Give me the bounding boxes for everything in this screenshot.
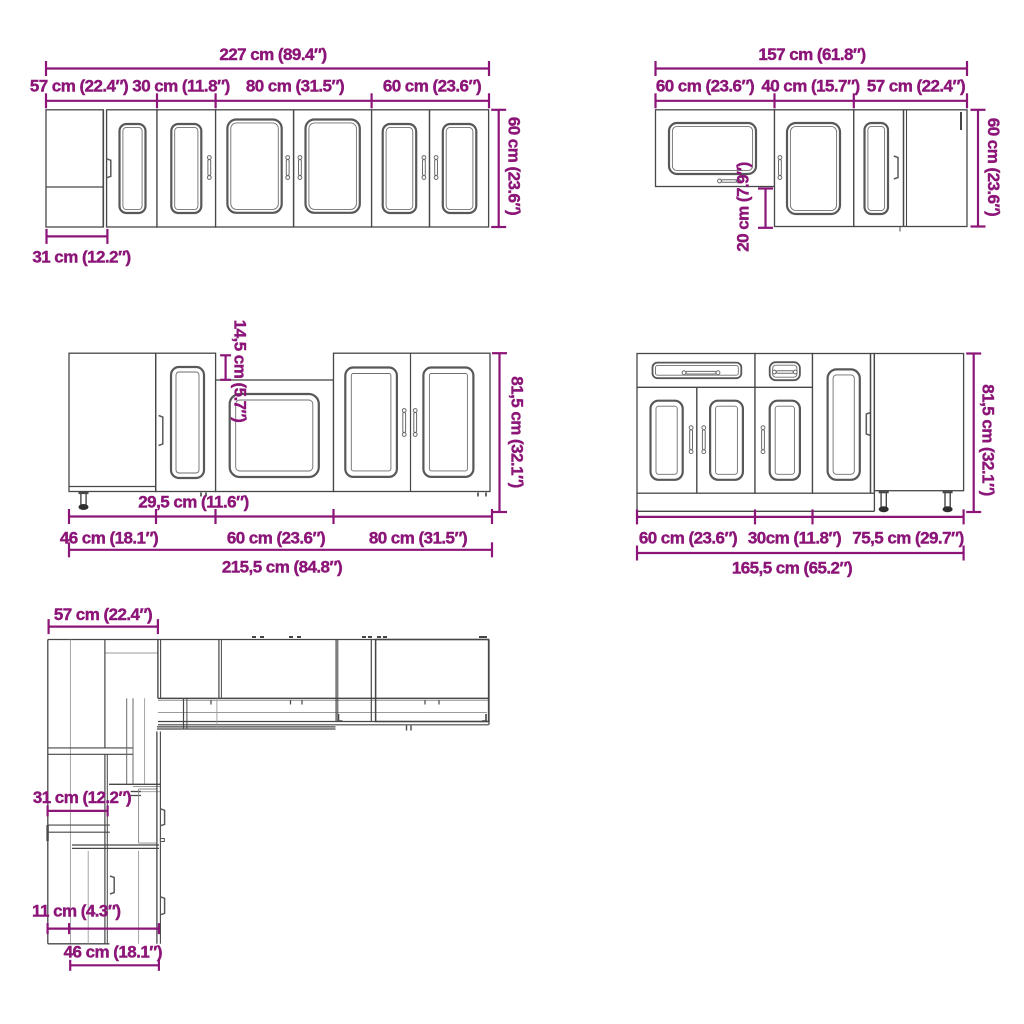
svg-text:80 cm (31.5″): 80 cm (31.5″) — [246, 77, 344, 96]
svg-text:80 cm (31.5″): 80 cm (31.5″) — [369, 529, 467, 548]
svg-text:40 cm (15.7″): 40 cm (15.7″) — [761, 77, 859, 96]
svg-text:60 cm (23.6″): 60 cm (23.6″) — [227, 529, 325, 548]
svg-text:215,5 cm (84.8″): 215,5 cm (84.8″) — [222, 558, 342, 577]
svg-text:30 cm (11.8″): 30 cm (11.8″) — [132, 77, 229, 96]
svg-text:46 cm (18.1″): 46 cm (18.1″) — [64, 943, 162, 962]
svg-text:29,5 cm (11.6″): 29,5 cm (11.6″) — [138, 493, 248, 512]
svg-text:11 cm (4.3″): 11 cm (4.3″) — [32, 902, 121, 921]
svg-text:81,5 cm (32.1″): 81,5 cm (32.1″) — [508, 376, 527, 487]
svg-text:57 cm (22.4″): 57 cm (22.4″) — [54, 605, 152, 624]
svg-text:157 cm (61.8″): 157 cm (61.8″) — [758, 45, 865, 64]
svg-text:165,5 cm (65.2″): 165,5 cm (65.2″) — [732, 559, 852, 578]
svg-text:31 cm (12.2″): 31 cm (12.2″) — [33, 788, 131, 807]
svg-text:57 cm (22.4″): 57 cm (22.4″) — [30, 77, 128, 96]
svg-text:60 cm (23.6″): 60 cm (23.6″) — [505, 117, 524, 215]
svg-text:60 cm (23.6″): 60 cm (23.6″) — [383, 77, 481, 96]
svg-text:57 cm (22.4″): 57 cm (22.4″) — [867, 77, 965, 96]
svg-text:14,5 cm (5.7″): 14,5 cm (5.7″) — [231, 320, 250, 423]
svg-text:30cm (11.8″): 30cm (11.8″) — [748, 529, 841, 548]
svg-text:81,5 cm (32.1″): 81,5 cm (32.1″) — [979, 384, 998, 495]
svg-text:60 cm (23.6″): 60 cm (23.6″) — [984, 118, 1003, 216]
svg-text:227 cm (89.4″): 227 cm (89.4″) — [219, 45, 326, 64]
svg-text:31 cm (12.2″): 31 cm (12.2″) — [32, 248, 130, 267]
svg-text:46 cm (18.1″): 46 cm (18.1″) — [60, 529, 158, 548]
svg-text:20 cm (7.9″): 20 cm (7.9″) — [734, 162, 753, 251]
svg-text:60 cm (23.6″): 60 cm (23.6″) — [639, 529, 737, 548]
svg-text:75,5 cm (29.7″): 75,5 cm (29.7″) — [852, 529, 963, 548]
svg-text:60 cm (23.6″): 60 cm (23.6″) — [656, 77, 754, 96]
